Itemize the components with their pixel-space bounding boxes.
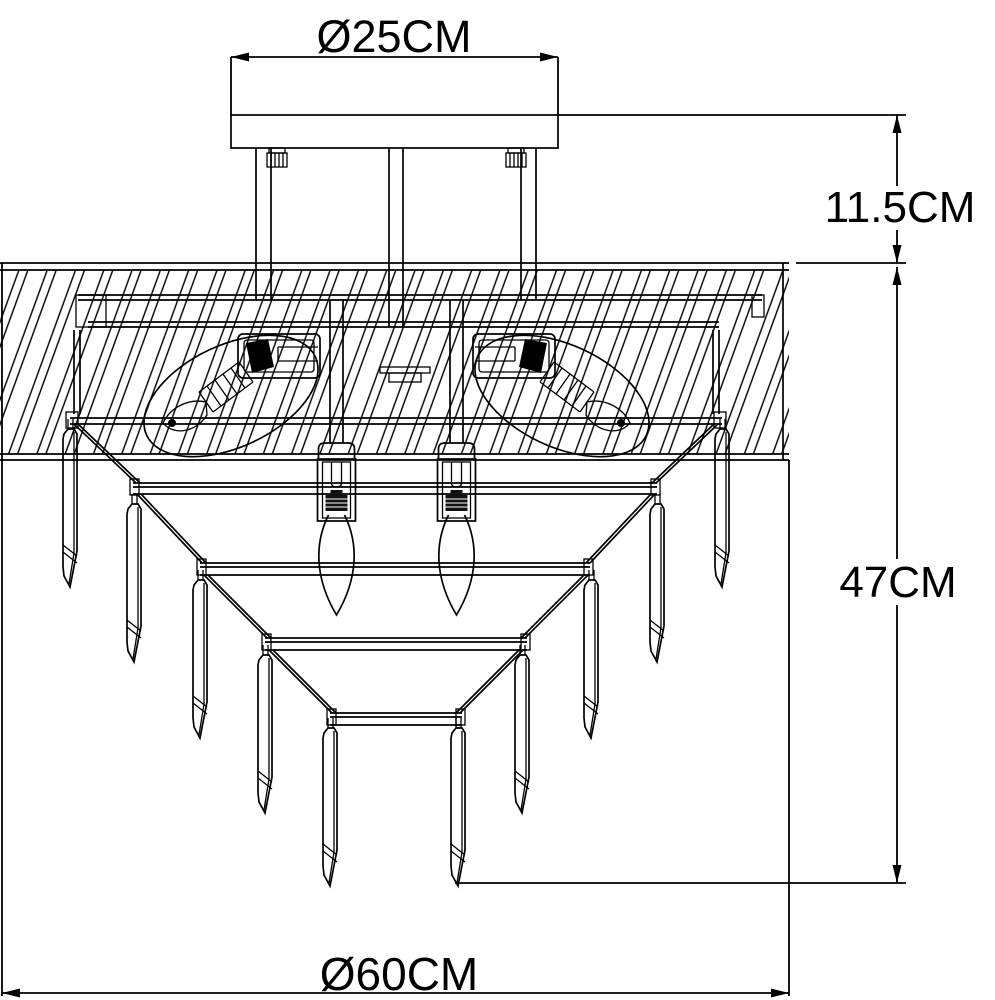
- crystal-prism: [584, 570, 598, 738]
- crystal-prism: [650, 494, 664, 662]
- crystal-prisms: [63, 419, 729, 886]
- tier-2-rail: [200, 563, 590, 575]
- drum-top-edge: [0, 263, 789, 270]
- crystal-prism: [193, 570, 207, 738]
- label-drop-height: 11.5CM: [825, 183, 976, 232]
- slat-band: [0, 270, 789, 454]
- label-bottom-diameter: Ø60CM: [320, 948, 478, 1000]
- crystal-prism: [451, 718, 465, 886]
- ceiling-canopy: [231, 115, 558, 148]
- crystal-prism: [323, 718, 337, 886]
- label-top-diameter: Ø25CM: [316, 11, 471, 62]
- crystal-prism: [515, 645, 529, 813]
- rod-connector-right: [506, 148, 526, 167]
- crystal-prism: [127, 494, 141, 662]
- tier-3-rail: [265, 638, 527, 650]
- tier-4-rail: [330, 713, 462, 725]
- tier-rings: [74, 424, 718, 725]
- drum-shade: [0, 263, 789, 460]
- label-body-height: 47CM: [839, 558, 956, 607]
- rod-connector-left: [267, 148, 287, 167]
- technical-drawing: Ø25CM 11.5CM 47CM Ø60CM: [0, 0, 995, 1000]
- tier-1-rail: [133, 483, 657, 494]
- crystal-prism: [258, 645, 272, 813]
- tier-diagonals-left: [74, 424, 336, 713]
- drum-bottom-edge: [0, 454, 789, 460]
- tier-diagonals-right: [456, 424, 718, 713]
